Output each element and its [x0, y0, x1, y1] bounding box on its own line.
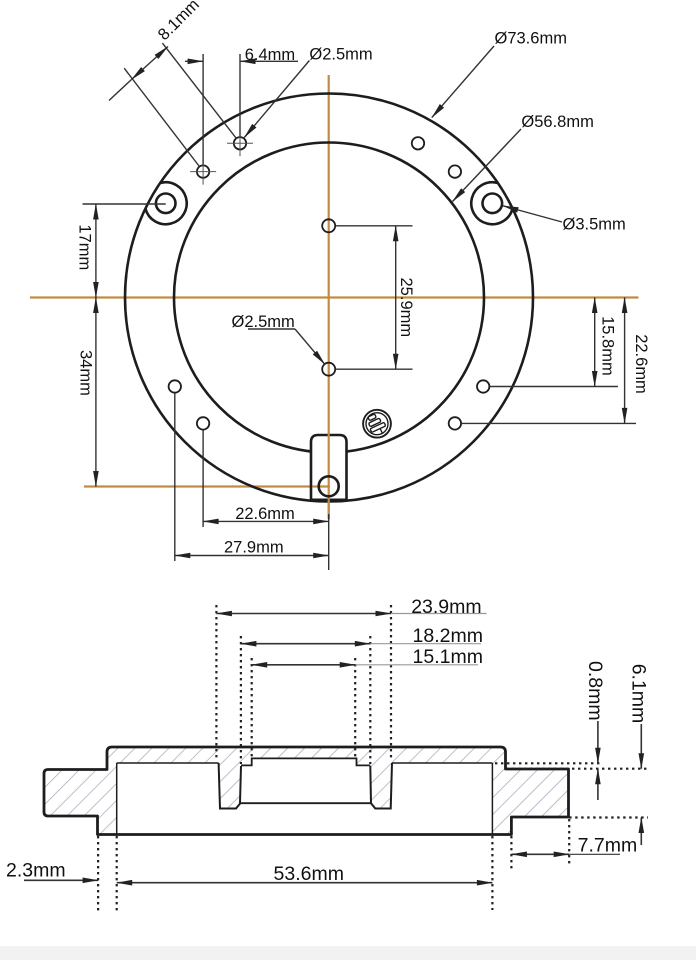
svg-text:23.9mm: 23.9mm [411, 596, 481, 618]
svg-text:18.2mm: 18.2mm [413, 625, 483, 647]
svg-text:2.3mm: 2.3mm [6, 860, 66, 882]
svg-text:27.9mm: 27.9mm [224, 539, 284, 557]
svg-text:Ø56.8mm: Ø56.8mm [521, 113, 593, 131]
svg-text:15.8mm: 15.8mm [599, 316, 617, 376]
svg-text:Ø73.6mm: Ø73.6mm [495, 30, 567, 48]
svg-text:6.4mm: 6.4mm [245, 46, 295, 64]
svg-text:15.1mm: 15.1mm [413, 646, 483, 668]
svg-text:7.7mm: 7.7mm [578, 835, 638, 857]
svg-text:0.8mm: 0.8mm [584, 661, 606, 721]
svg-text:Ø3.5mm: Ø3.5mm [563, 215, 626, 233]
svg-text:53.6mm: 53.6mm [274, 863, 344, 885]
svg-text:17mm: 17mm [76, 224, 94, 270]
svg-text:22.6mm: 22.6mm [235, 505, 295, 523]
svg-text:6.1mm: 6.1mm [628, 664, 650, 724]
svg-text:Ø2.5mm: Ø2.5mm [232, 313, 295, 331]
svg-text:25.9mm: 25.9mm [397, 277, 415, 337]
svg-text:Ø2.5mm: Ø2.5mm [309, 46, 372, 64]
svg-text:34mm: 34mm [76, 350, 94, 396]
svg-text:22.6mm: 22.6mm [632, 334, 650, 394]
